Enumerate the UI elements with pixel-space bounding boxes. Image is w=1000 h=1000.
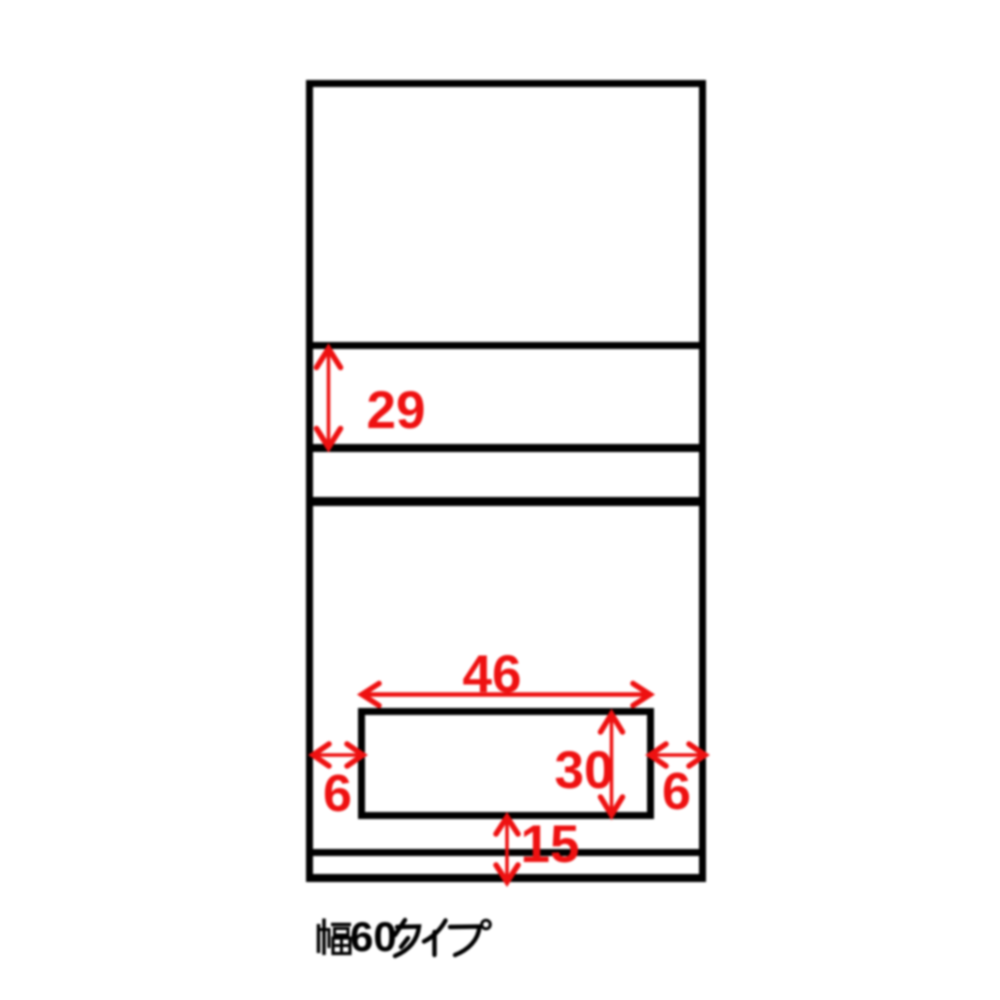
svg-text:6: 6: [323, 765, 352, 823]
svg-text:29: 29: [367, 381, 426, 440]
svg-text:60: 60: [350, 913, 397, 960]
svg-text:6: 6: [662, 763, 691, 821]
svg-text:15: 15: [521, 815, 580, 874]
svg-text:30: 30: [555, 741, 614, 800]
